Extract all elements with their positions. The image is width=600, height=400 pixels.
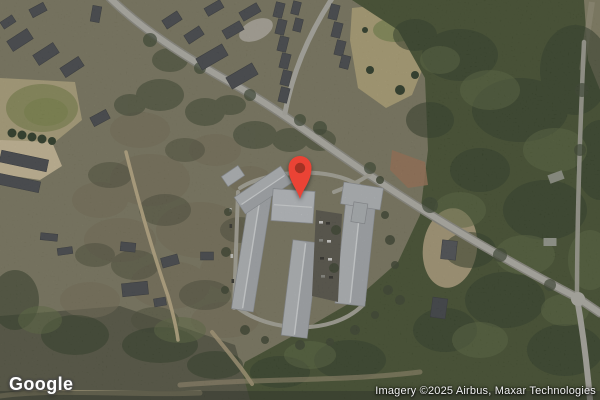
pin-body — [289, 156, 312, 199]
map-canvas[interactable]: Google Imagery ©2025 Airbus, Maxar Techn… — [0, 0, 600, 400]
map-pin-icon[interactable] — [286, 153, 314, 201]
pin-dot — [295, 163, 305, 173]
google-logo[interactable]: Google — [9, 374, 73, 395]
imagery-attribution: Imagery ©2025 Airbus, Maxar Technologies — [375, 385, 596, 397]
